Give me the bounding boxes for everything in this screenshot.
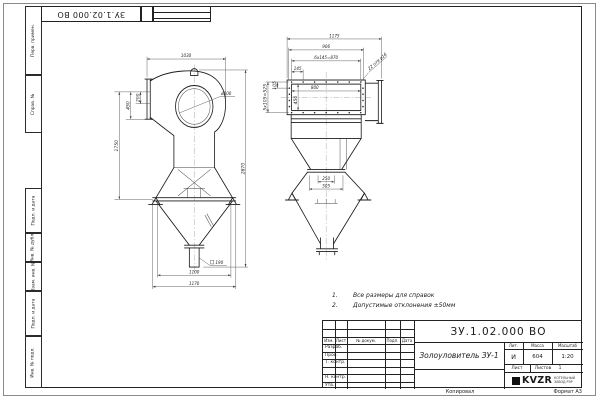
massa-value: 604 [523,349,552,364]
col-list: Лист [335,337,347,344]
dim-opening-width: 800 [311,85,319,91]
masshtab-label: Масштаб [552,342,583,349]
col-data: Дата [400,337,414,344]
massa-label: Масса [523,342,552,349]
dim-top-width: 1030 [181,53,192,59]
top-stamp-text: ЗУ.1.02.000 ВО [57,10,125,19]
listov-label: Листов [532,364,554,372]
dim-bolt-pitch-h: 6x145=870 [314,55,338,61]
logo-subtitle: КОТЕЛЬНЫЙ ЗАВОД РЭР [554,377,575,384]
product-name: Золоуловитель ЗУ-1 [414,342,504,369]
dim-overall-width-right: 1175 [329,33,340,39]
top-stamp-lined-cell [153,6,211,22]
dim-chute-width: 250 [322,176,330,182]
dim-chute-flange-width: 505 [322,183,330,189]
dim-opening-height: 450 [293,95,299,104]
square-symbol [211,260,214,264]
margin-label-podp-data-1: Подп. и дата [25,188,42,233]
doc-number: ЗУ.1.02.000 ВО [414,321,583,342]
assembly-drawing: .main{stroke:#1b1b1b;stroke-width:1;fill… [90,28,485,320]
margin-label-vzam-inv: Взам. инв. № [25,262,42,291]
margin-label-text: Подп. и дата [31,299,36,329]
margin-label-podp-data-2: Подп. и дата [25,291,42,336]
left-view: ø500 1030 2870 200 450 1750 1100 1170 19… [114,53,248,289]
note-number: 2. [332,302,353,309]
margin-label-text: Инв. № дубл. [31,232,36,262]
chute-flange [316,238,337,255]
margin-label-text: Справ. № [31,93,36,114]
dim-outlet-diameter: ø500 [220,91,231,97]
dim-inlet-height: 200 [136,93,142,102]
format-label: Формат А3 [527,389,582,395]
note-text: Допустимые отклонения ±50мм [353,302,455,309]
right-view: 1175 906 6x145=870 145 22 отв ø16 800 45… [263,33,388,260]
dim-overall-width: 1170 [189,281,200,287]
dim-chute-square: 190 [215,260,223,266]
row-razrab: Разраб. [323,344,347,352]
margin-label-inv-podl: Инв. № подл. [25,336,42,388]
notes: 1. Все размеры для справок 2. Допустимые… [332,290,502,310]
listov-value: 1 [554,364,566,372]
dim-bolt-pitch-v: 5x105=525 [263,84,269,111]
margin-label-sprav-no: Справ. № [25,75,42,133]
note-number: 1. [332,292,353,299]
col-podp: Подп. [385,337,400,344]
margin-label-text: Перв. примен. [31,24,36,57]
top-stamp: ЗУ.1.02.000 ВО [41,6,141,22]
holes-callout: 22 отв ø16 [366,51,388,73]
company-logo: KVZR КОТЕЛЬНЫЙ ЗАВОД РЭР [504,372,583,389]
dim-bolt-first-pitch: 145 [294,66,302,72]
margin-label-text: Инв. № подл. [31,347,36,377]
row-utv: Утв. [323,382,347,390]
row-nkontr: Н. контр. [323,374,347,382]
lit-label: Лит. [504,342,523,349]
dim-bolt-first-pitch-v: 105 [272,81,278,90]
dim-inlet-offset: 450 [126,101,132,110]
logo-sub-line2: ЗАВОД РЭР [554,381,575,385]
row-prov: Пров. [323,352,347,360]
outlet-duct [365,80,383,123]
col-izm: Изм. [323,337,335,344]
list-label: Лист [504,364,530,372]
dim-flange-width: 906 [322,44,330,50]
row-tkontr: Т. контр. [323,359,347,367]
dim-holes-note: 22 отв ø16 [367,51,389,72]
margin-label-perv-primen: Перв. примен. [25,6,42,75]
drawing-sheet: Перв. примен. Справ. № Подп. и дата Инв.… [0,0,600,400]
top-stamp-small-cell [141,6,153,22]
col-docum: № докум. [347,337,385,344]
dim-total-height: 2870 [241,162,247,174]
dim-hopper-width: 1100 [189,269,200,275]
masshtab-value: 1:20 [552,349,583,364]
margin-label-text: Подп. и дата [31,196,36,226]
note-text: Все размеры для справок [353,292,434,299]
support-legs [285,193,371,200]
note-1: 1. Все размеры для справок [332,290,502,300]
note-2: 2. Допустимые отклонения ±50мм [332,300,502,310]
lit-value: И [504,349,523,364]
title-block: Изм. Лист № докум. Подп. Дата Разраб. Пр… [322,320,582,388]
margin-label-inv-dubl: Инв. № дубл. [25,233,42,262]
kopiroval-label: Копировал [400,389,520,395]
logo-text: KVZR [522,375,552,386]
dim-body-height: 1750 [114,140,120,152]
logo-square-icon [512,377,520,385]
margin-label-text: Взам. инв. № [31,262,36,292]
